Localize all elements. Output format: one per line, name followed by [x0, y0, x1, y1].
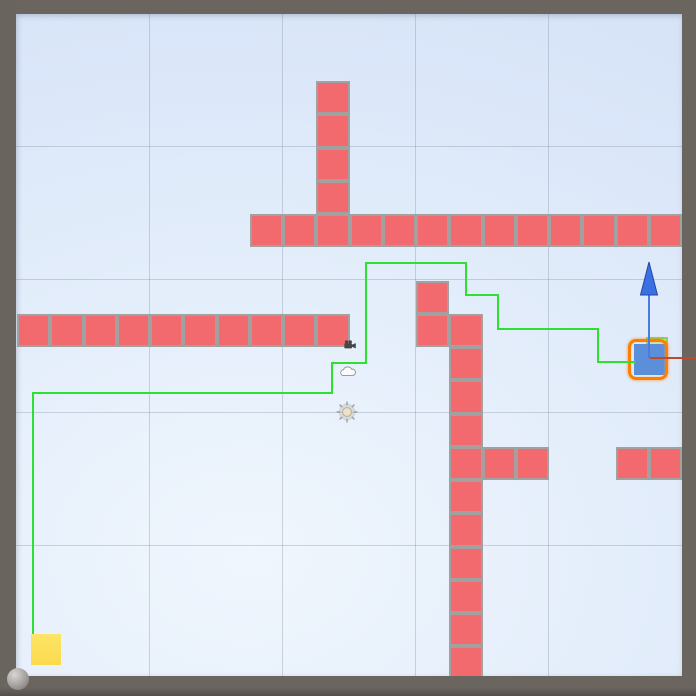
window-frame-left [0, 0, 16, 696]
wall-tile[interactable] [616, 447, 649, 480]
wall-tile[interactable] [50, 314, 83, 347]
scene-viewport[interactable] [16, 14, 682, 676]
wall-tile[interactable] [17, 314, 50, 347]
wall-tile[interactable] [316, 114, 349, 147]
wall-tile[interactable] [449, 613, 482, 646]
light-gizmo-icon[interactable] [334, 399, 360, 425]
wall-tile[interactable] [549, 214, 582, 247]
wall-tile[interactable] [449, 414, 482, 447]
wall-tile[interactable] [649, 447, 682, 480]
goal-square[interactable] [31, 634, 61, 665]
wall-tile[interactable] [316, 81, 349, 114]
wall-tile[interactable] [616, 214, 649, 247]
wall-tile[interactable] [449, 547, 482, 580]
wall-tile[interactable] [150, 314, 183, 347]
window-frame-right [682, 0, 696, 696]
wall-tile[interactable] [84, 314, 117, 347]
wall-tile[interactable] [483, 447, 516, 480]
wall-tile[interactable] [449, 513, 482, 546]
wall-tile[interactable] [416, 214, 449, 247]
wall-tile[interactable] [183, 314, 216, 347]
window-frame-top [0, 0, 696, 14]
wall-tile[interactable] [649, 214, 682, 247]
wall-tile[interactable] [449, 646, 482, 676]
wall-tile[interactable] [217, 314, 250, 347]
wall-tile[interactable] [483, 214, 516, 247]
wall-tile[interactable] [316, 214, 349, 247]
grid-line-horizontal [16, 545, 682, 546]
wall-tile[interactable] [449, 447, 482, 480]
wall-tile[interactable] [582, 214, 615, 247]
window-frame-bottom [0, 676, 696, 696]
wall-tile[interactable] [316, 181, 349, 214]
wall-tile[interactable] [449, 347, 482, 380]
wall-tile[interactable] [383, 214, 416, 247]
cloud-gizmo-icon[interactable] [339, 365, 357, 377]
wall-tile[interactable] [283, 214, 316, 247]
wall-tile[interactable] [516, 447, 549, 480]
wall-tile[interactable] [117, 314, 150, 347]
wall-tile[interactable] [449, 314, 482, 347]
wall-tile[interactable] [283, 314, 316, 347]
wall-tile[interactable] [449, 480, 482, 513]
camera-gizmo-icon[interactable] [344, 340, 357, 350]
wall-tile[interactable] [316, 148, 349, 181]
wall-tile[interactable] [449, 580, 482, 613]
wall-tile[interactable] [449, 214, 482, 247]
corner-sphere-gizmo [7, 668, 29, 690]
wall-tile[interactable] [350, 214, 383, 247]
grid-line-vertical [548, 14, 549, 676]
wall-tile[interactable] [516, 214, 549, 247]
wall-tile[interactable] [250, 214, 283, 247]
wall-tile[interactable] [416, 281, 449, 314]
wall-tile[interactable] [416, 314, 449, 347]
grid-line-horizontal [16, 279, 682, 280]
wall-tile[interactable] [449, 380, 482, 413]
unity-scene-view-window [0, 0, 696, 696]
wall-tile[interactable] [250, 314, 283, 347]
selection-outline [628, 339, 668, 380]
